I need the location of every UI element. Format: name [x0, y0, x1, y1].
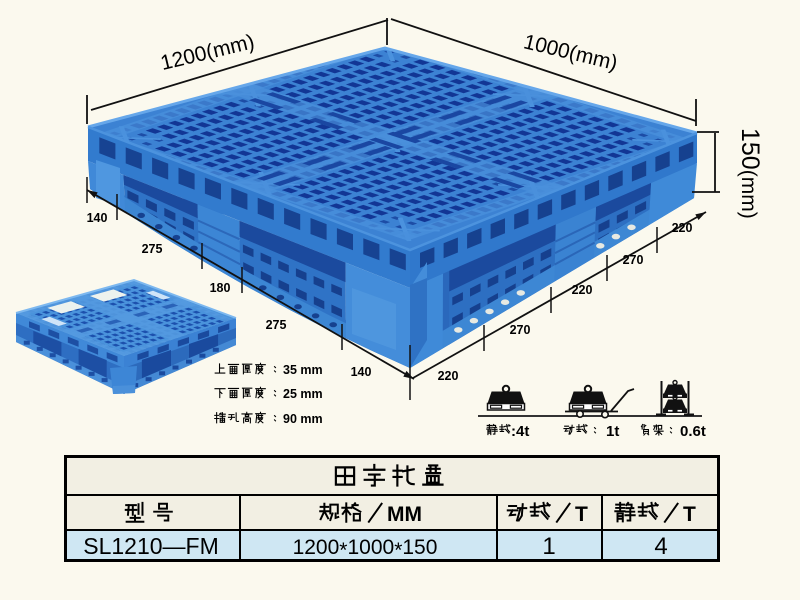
svg-text:0.6t: 0.6t	[680, 423, 706, 440]
svg-text:150(mm): 150(mm)	[736, 128, 764, 219]
svg-text:275: 275	[142, 242, 163, 256]
svg-text:25 mm: 25 mm	[283, 387, 323, 401]
svg-text:1: 1	[542, 533, 555, 560]
svg-text:140: 140	[87, 211, 108, 225]
svg-text:T: T	[683, 503, 696, 526]
svg-text:90 mm: 90 mm	[283, 412, 323, 426]
svg-text:220: 220	[672, 221, 693, 235]
svg-text:35 mm: 35 mm	[283, 363, 323, 377]
svg-text:270: 270	[510, 323, 531, 337]
svg-text:4: 4	[654, 533, 667, 560]
svg-text:T: T	[575, 503, 588, 526]
svg-text:MM: MM	[387, 503, 422, 526]
svg-text:SL1210—FM: SL1210—FM	[83, 533, 219, 559]
svg-text:140: 140	[351, 365, 372, 379]
svg-text:270: 270	[623, 253, 644, 267]
svg-text:1t: 1t	[606, 423, 619, 440]
svg-text:275: 275	[266, 318, 287, 332]
svg-text:1200*1000*150: 1200*1000*150	[293, 536, 438, 562]
svg-text:220: 220	[572, 283, 593, 297]
svg-text::4t: :4t	[511, 423, 529, 440]
svg-text:220: 220	[438, 369, 459, 383]
svg-text:180: 180	[210, 281, 231, 295]
